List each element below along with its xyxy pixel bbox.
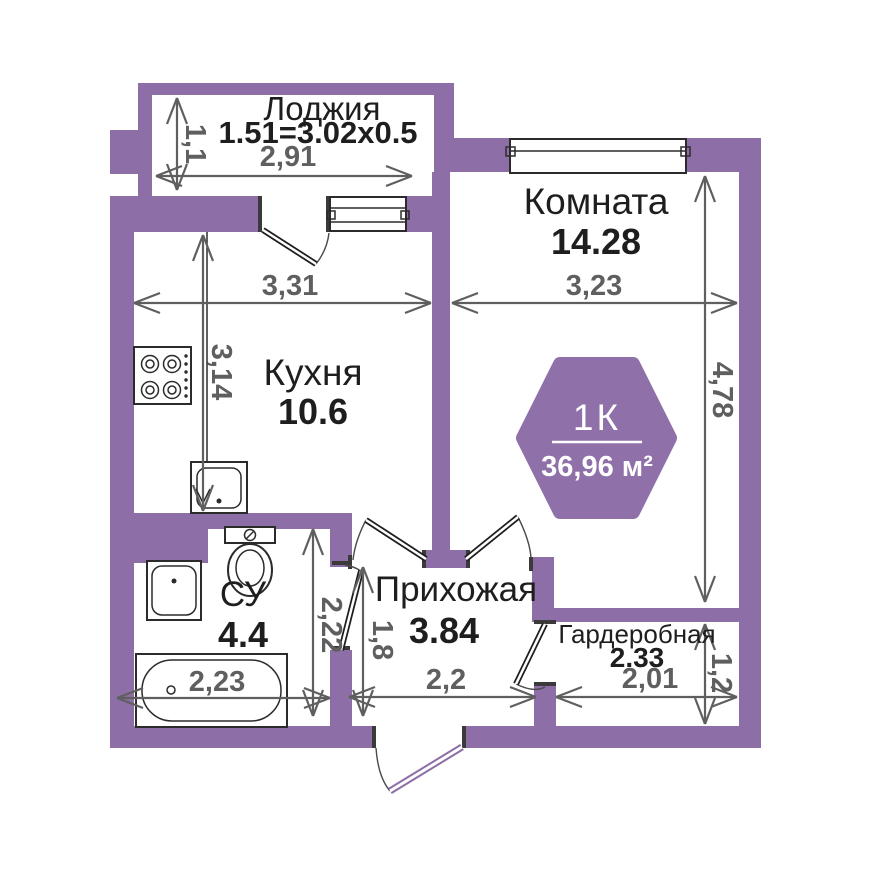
kitchen-sink-icon (191, 462, 247, 513)
badge-type-label: 1К (573, 397, 621, 438)
area-badge: 1К 36,96 м² (523, 364, 670, 512)
loggia-formula: 1.51=3.02x0.5 (218, 115, 417, 150)
living-room-depth-dimension: 4,78 (706, 362, 738, 418)
loggia-width-dimension: 2,91 (260, 141, 316, 173)
room-door (466, 517, 531, 559)
living-room-area: 14.28 (551, 221, 641, 262)
kitchen-width-dimension: 3,31 (262, 270, 318, 302)
badge-area-label: 36,96 м² (541, 451, 653, 483)
hallway-width-dimension: 2,2 (426, 664, 466, 696)
balcony-door (263, 230, 329, 264)
hallway-label: Прихожая (375, 570, 537, 609)
stove-icon (134, 347, 191, 404)
kitchen-depth-dimension: 3,14 (205, 344, 237, 400)
room-window-icon (506, 139, 690, 173)
kitchen-door (353, 520, 426, 560)
bathroom-depth-dimension: 2,22 (315, 597, 347, 653)
wardrobe-width-dimension: 2,01 (622, 663, 678, 695)
floor-plan-page: Лоджия 1.51=3.02x0.5 2,91 1,1 Комната 14… (0, 0, 880, 880)
hallway-area: 3.84 (409, 610, 479, 651)
bathroom-label: СУ (220, 575, 267, 614)
floor-plan-svg: Лоджия 1.51=3.02x0.5 2,91 1,1 Комната 14… (0, 0, 880, 880)
entrance-door (376, 747, 462, 791)
living-room-width-dimension: 3,23 (566, 270, 622, 302)
wardrobe-depth-dimension: 1,2 (705, 653, 737, 693)
loggia-depth-dimension: 1,1 (179, 124, 211, 164)
living-room-label: Комната (524, 181, 669, 222)
loggia-window-icon (327, 197, 409, 231)
wardrobe-door (516, 624, 545, 689)
bathroom-area: 4.4 (218, 614, 268, 655)
washbasin-icon (147, 561, 201, 620)
hallway-door-wall-dimension: 1,8 (366, 620, 398, 660)
kitchen-label: Кухня (263, 352, 362, 393)
hexagon-icon (523, 364, 670, 512)
bathtub-width-dimension: 2,23 (189, 666, 245, 698)
kitchen-area: 10.6 (278, 391, 348, 432)
